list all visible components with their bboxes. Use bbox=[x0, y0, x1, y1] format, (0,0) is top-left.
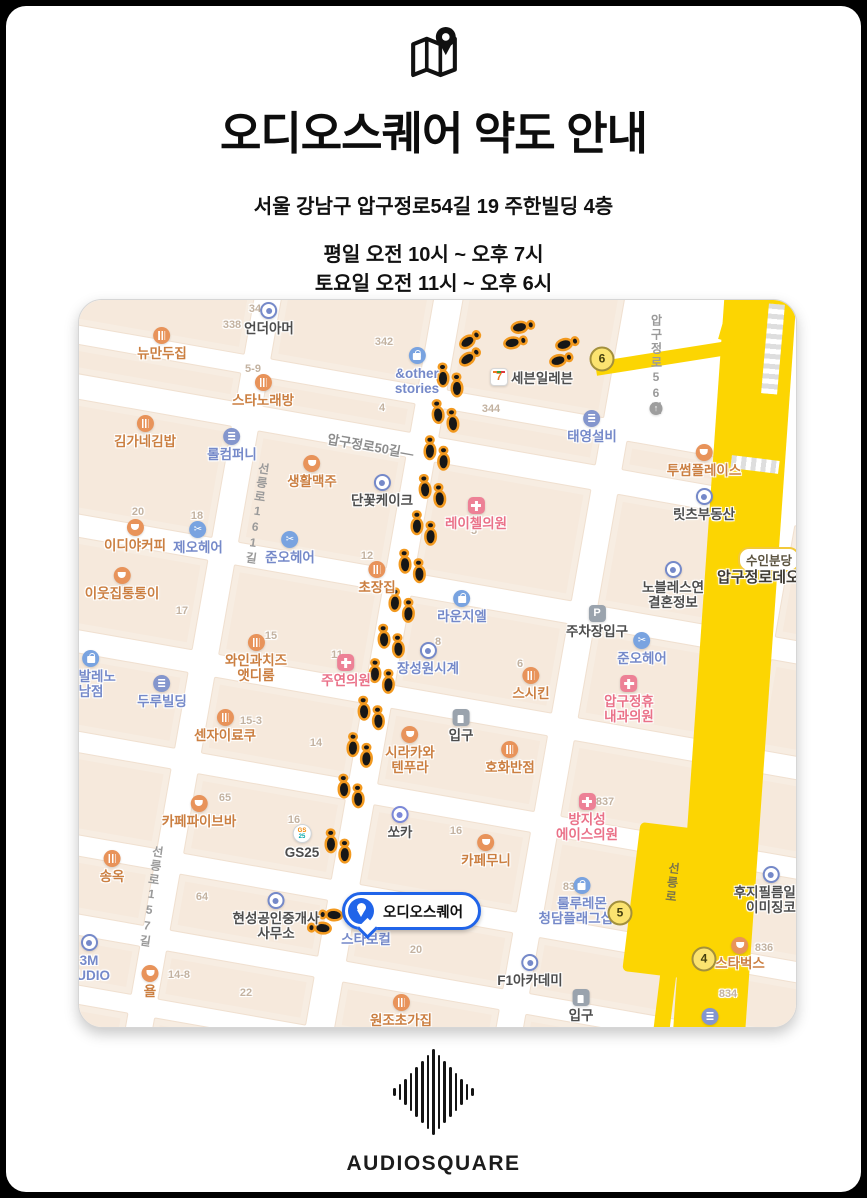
bld-icon bbox=[702, 1008, 719, 1025]
food-icon bbox=[247, 634, 264, 651]
poi-label: 단꽃케이크 bbox=[351, 493, 413, 508]
map-poi: 현성공인중개사사무소 bbox=[233, 892, 320, 941]
food-icon bbox=[104, 850, 121, 867]
map-poi: 생활맥주 bbox=[287, 455, 337, 489]
poi-label: 생활맥주 bbox=[287, 474, 337, 489]
building-number: 20 bbox=[410, 944, 422, 956]
poi-label: 제오헤어 bbox=[173, 540, 223, 555]
building-number: 20 bbox=[132, 506, 144, 518]
food-icon bbox=[136, 415, 153, 432]
brand-first: AUDIO bbox=[346, 1152, 421, 1175]
cup-icon bbox=[142, 965, 159, 982]
bld-icon bbox=[154, 675, 171, 692]
map-poi: 쏘카 bbox=[388, 806, 413, 840]
clinic-icon bbox=[467, 497, 484, 514]
dot-icon bbox=[81, 934, 98, 951]
map-poi: 코발레노남점 bbox=[78, 650, 116, 699]
map-poi: 욜 bbox=[142, 965, 159, 999]
map-poi: 시라카와텐푸라 bbox=[385, 726, 435, 775]
map-poi: 투썸플레이스 bbox=[667, 444, 742, 478]
map-poi: 센자이료쿠 bbox=[194, 709, 256, 743]
poi-label: 스타노래방 bbox=[232, 393, 294, 408]
flyer-page: 오디오스퀘어 약도 안내 서울 강남구 압구정로54길 19 주한빌딩 4층 평… bbox=[6, 6, 861, 1192]
map-poi: GS25GS25 bbox=[285, 824, 320, 860]
bag-icon bbox=[573, 877, 590, 894]
poi-label: 레이첼의원 bbox=[445, 516, 507, 531]
audiosquare-logo-icon bbox=[6, 1046, 861, 1138]
poi-label: 준오헤어 bbox=[617, 651, 667, 666]
dot-icon bbox=[763, 866, 780, 883]
map-poi: F1아카데미 bbox=[497, 954, 562, 988]
map-poi: 뉴만두집 bbox=[137, 327, 187, 361]
clinic-icon bbox=[621, 675, 638, 692]
bld-icon bbox=[584, 410, 601, 427]
flyer-footer: AUDIOSQUARE bbox=[6, 1046, 861, 1176]
food-icon bbox=[392, 994, 409, 1011]
poi-label: 시라카와텐푸라 bbox=[385, 745, 435, 775]
brand-wordmark: AUDIOSQUARE bbox=[6, 1152, 861, 1176]
map-poi: 입구 bbox=[449, 709, 474, 743]
map-poi: 준오헤어 bbox=[617, 632, 667, 666]
map-poi: 이웃집통통이 bbox=[85, 567, 160, 601]
cup-icon bbox=[478, 834, 495, 851]
cup-icon bbox=[732, 937, 749, 954]
map-poi: 방지성에이스의원 bbox=[556, 793, 618, 842]
bag-icon bbox=[83, 650, 100, 667]
building-number: 64 bbox=[196, 891, 208, 903]
poi-label: 노블레스연결혼정보 bbox=[642, 580, 704, 610]
building-number: 22 bbox=[240, 987, 252, 999]
food-icon bbox=[502, 741, 519, 758]
bag-icon bbox=[454, 590, 471, 607]
footprint-icon bbox=[337, 770, 364, 806]
poi-label: 송옥 bbox=[100, 869, 125, 884]
poi-label: 주연의원 bbox=[321, 673, 371, 688]
map-poi: 릿츠부동산 bbox=[673, 488, 735, 522]
road-label: 압구정로56길 bbox=[648, 314, 665, 416]
destination-marker: 오디오스퀘어 bbox=[342, 892, 481, 930]
map-poi: 롤컴퍼니 bbox=[207, 428, 257, 462]
poi-label: 센자이료쿠 bbox=[194, 728, 256, 743]
bag-icon bbox=[409, 347, 426, 364]
poi-label: 초장집 bbox=[358, 580, 395, 595]
food-icon bbox=[254, 374, 271, 391]
cup-icon bbox=[304, 455, 321, 472]
poi-label: 언더아머 bbox=[244, 321, 294, 336]
poi-label: 코발레노남점 bbox=[78, 669, 116, 699]
poi-label: 뉴만두집 bbox=[137, 346, 187, 361]
map-poi: 압구정휴내과의원 bbox=[604, 675, 654, 724]
poi-label: 이웃집통통이 bbox=[85, 586, 160, 601]
poi-label: 현성공인중개사사무소 bbox=[233, 911, 320, 941]
poi-label: 김가네김밥 bbox=[114, 434, 176, 449]
poi-label: 후지필름일레이미징코 bbox=[734, 885, 797, 915]
footprint-icon bbox=[367, 654, 395, 691]
poi-label: 장성원시계 bbox=[397, 661, 459, 676]
poi-label: 라운지엘 bbox=[437, 609, 487, 624]
map-pin-icon bbox=[6, 26, 861, 91]
map-poi: 카페무니 bbox=[461, 834, 511, 868]
seven-icon bbox=[490, 368, 508, 386]
page-title: 오디오스퀘어 약도 안내 bbox=[6, 97, 861, 162]
map-poi: 카페파이브바 bbox=[162, 795, 237, 829]
subway-exit-badge: 5 bbox=[608, 901, 633, 926]
station-name: 압구정로데오 bbox=[717, 566, 797, 587]
poi-label: &otherstories bbox=[395, 366, 439, 396]
poi-label: 압구정휴내과의원 bbox=[604, 694, 654, 724]
map-poi: 레이첼의원 bbox=[445, 497, 507, 531]
cup-icon bbox=[696, 444, 713, 461]
food-icon bbox=[522, 667, 539, 684]
dot-icon bbox=[267, 892, 284, 909]
clinic-icon bbox=[338, 654, 355, 671]
building-number: 834 bbox=[719, 988, 737, 1000]
dot-icon bbox=[664, 561, 681, 578]
dot-icon bbox=[373, 474, 390, 491]
map-poi: 송옥 bbox=[100, 850, 125, 884]
clinic-icon bbox=[578, 793, 595, 810]
map-poi bbox=[702, 1008, 719, 1025]
gs25-icon: GS25 bbox=[293, 824, 312, 843]
dot-icon bbox=[261, 302, 278, 319]
cup-icon bbox=[191, 795, 208, 812]
map-poi: 단꽃케이크 bbox=[351, 474, 413, 508]
building-number: 17 bbox=[176, 605, 188, 617]
map-poi: 장성원시계 bbox=[397, 642, 459, 676]
food-icon bbox=[368, 561, 385, 578]
sci-icon bbox=[282, 531, 299, 548]
bld-icon bbox=[224, 428, 241, 445]
address-line: 서울 강남구 압구정로54길 19 주한빌딩 4층 bbox=[6, 190, 861, 219]
city-block bbox=[157, 950, 314, 1025]
footprint-icon bbox=[345, 728, 373, 765]
map-poi: 후지필름일레이미징코 bbox=[734, 866, 797, 915]
map-poi: 3MTUDIO bbox=[78, 934, 110, 983]
map-poi: 태영설비 bbox=[567, 410, 617, 444]
sci-icon bbox=[634, 632, 651, 649]
poi-label: 입구 bbox=[569, 1008, 594, 1023]
brand-second: SQUARE bbox=[422, 1152, 521, 1175]
park-icon bbox=[588, 605, 605, 622]
hours-saturday: 토요일 오전 11시 ~ 오후 6시 bbox=[6, 270, 861, 299]
poi-label: 스시킨 bbox=[512, 686, 549, 701]
footprint-icon bbox=[409, 507, 436, 544]
ent-icon bbox=[573, 989, 590, 1006]
footprint-icon bbox=[417, 469, 445, 507]
poi-label: 카페무니 bbox=[461, 853, 511, 868]
map-poi: 입구 bbox=[569, 989, 594, 1023]
footprint-icon bbox=[356, 692, 383, 729]
map-poi: 스타벅스 bbox=[715, 937, 765, 971]
map-poi: 라운지엘 bbox=[437, 590, 487, 624]
building-number: 338 bbox=[223, 319, 241, 331]
cup-icon bbox=[126, 519, 143, 536]
map-poi: 와인과치즈앳디룸 bbox=[225, 634, 287, 683]
footprint-icon bbox=[324, 825, 351, 861]
ent-icon bbox=[453, 709, 470, 726]
subway-exit-badge: 4 bbox=[692, 947, 717, 972]
poi-label: 롤컴퍼니 bbox=[207, 447, 257, 462]
map-poi: 세븐일레븐 bbox=[490, 368, 573, 386]
dot-icon bbox=[419, 642, 436, 659]
poi-label: 카페파이브바 bbox=[162, 814, 237, 829]
poi-label: 3MTUDIO bbox=[78, 953, 110, 983]
dot-icon bbox=[695, 488, 712, 505]
poi-label: 호화반점 bbox=[485, 760, 535, 775]
building-number: 14-8 bbox=[168, 969, 190, 981]
map-poi: 이디야커피 bbox=[104, 519, 166, 553]
map-poi: 초장집 bbox=[358, 561, 395, 595]
hours-weekday: 평일 오전 10시 ~ 오후 7시 bbox=[6, 241, 861, 270]
flyer-header: 오디오스퀘어 약도 안내 서울 강남구 압구정로54길 19 주한빌딩 4층 평… bbox=[6, 6, 861, 323]
cup-icon bbox=[114, 567, 131, 584]
map-poi: 준오헤어 bbox=[265, 531, 315, 565]
map-poi: &otherstories bbox=[395, 347, 439, 396]
map-poi: 제오헤어 bbox=[173, 521, 223, 555]
map-poi: 원조초가집 bbox=[370, 994, 432, 1028]
poi-label: 쏘카 bbox=[388, 825, 413, 840]
poi-label: 와인과치즈앳디룸 bbox=[225, 653, 287, 683]
poi-label: GS25 bbox=[285, 845, 320, 860]
map-poi: 호화반점 bbox=[485, 741, 535, 775]
poi-label: 방지성에이스의원 bbox=[556, 812, 618, 842]
poi-label: 투썸플레이스 bbox=[667, 463, 742, 478]
poi-label: 욜 bbox=[144, 984, 156, 999]
poi-label: 원조초가집 bbox=[370, 1013, 432, 1028]
map-poi: 노블레스연결혼정보 bbox=[642, 561, 704, 610]
dot-icon bbox=[522, 954, 539, 971]
poi-label: F1아카데미 bbox=[497, 973, 562, 988]
food-icon bbox=[154, 327, 171, 344]
building-number: 14 bbox=[310, 737, 322, 749]
footprint-icon bbox=[429, 394, 458, 432]
poi-label: 태영설비 bbox=[567, 429, 617, 444]
map-poi: 언더아머 bbox=[244, 302, 294, 336]
destination-label: 오디오스퀘어 bbox=[383, 901, 463, 922]
cup-icon bbox=[402, 726, 419, 743]
map-poi bbox=[650, 402, 663, 415]
poi-label: 세븐일레븐 bbox=[511, 371, 573, 386]
subway-exit-badge: 6 bbox=[590, 347, 615, 372]
food-icon bbox=[216, 709, 233, 726]
poi-label: 이디야커피 bbox=[104, 538, 166, 553]
sci-icon bbox=[190, 521, 207, 538]
arrow-icon bbox=[650, 402, 663, 415]
location-map: 압구정로50길—선릉로161길선릉로157길압구정로56길선릉로33834342… bbox=[78, 299, 797, 1028]
map-poi: 스시킨 bbox=[512, 667, 549, 701]
footprint-icon bbox=[422, 432, 449, 469]
footprint-icon bbox=[397, 545, 424, 582]
poi-label: 입구 bbox=[449, 728, 474, 743]
building-number: 4 bbox=[379, 402, 385, 414]
map-poi: 스타노래방 bbox=[232, 374, 294, 408]
map-poi: 주연의원 bbox=[321, 654, 371, 688]
poi-label: 릿츠부동산 bbox=[673, 507, 735, 522]
poi-label: 두루빌딩 bbox=[137, 694, 187, 709]
map-poi: 두루빌딩 bbox=[137, 675, 187, 709]
building-number: 344 bbox=[482, 403, 500, 415]
poi-label: 준오헤어 bbox=[265, 550, 315, 565]
map-poi: 김가네김밥 bbox=[114, 415, 176, 449]
poi-dot-icon bbox=[392, 806, 409, 823]
footprint-icon bbox=[436, 359, 462, 395]
building-number: 342 bbox=[375, 336, 393, 348]
poi-label: 스타벅스 bbox=[715, 956, 765, 971]
business-hours: 평일 오전 10시 ~ 오후 7시 토요일 오전 11시 ~ 오후 6시 bbox=[6, 241, 861, 299]
